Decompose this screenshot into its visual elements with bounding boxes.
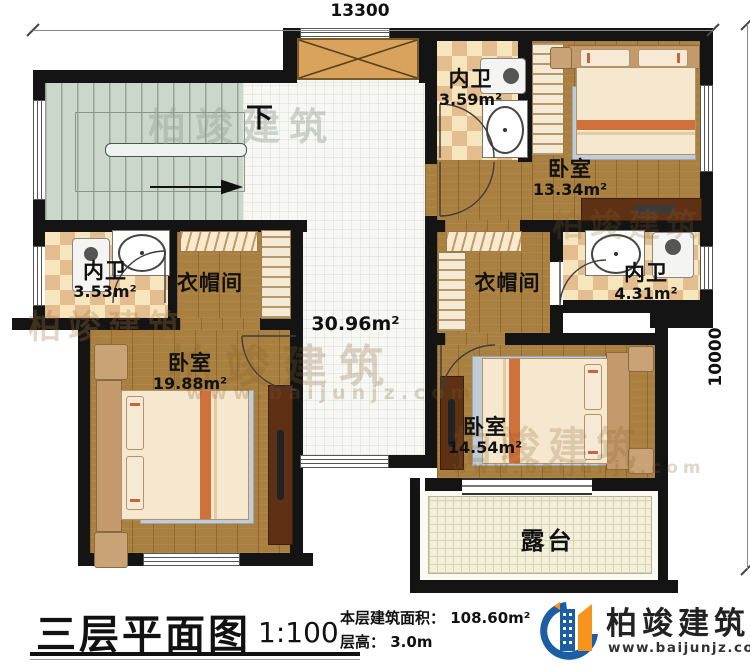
tv <box>277 430 284 500</box>
room-name: 卧室 <box>120 352 260 375</box>
room-name: 卧室 <box>415 416 555 439</box>
room-label-bedroom-se: 卧室 14.54m² <box>415 416 555 457</box>
bedroom-se-doorway <box>445 333 505 345</box>
room-area: 19.88m² <box>120 375 260 393</box>
room-name: 内卫 <box>590 262 702 285</box>
floor-plan: 13300 10000 柏竣建筑 柏竣建筑 柏竣建筑 柏竣建筑 www.baij… <box>0 0 750 669</box>
room-label-closet-west: 衣帽间 <box>155 272 265 295</box>
nightstand <box>94 532 128 568</box>
hanging-rack <box>180 231 258 252</box>
room-label-bath-east: 内卫 4.31m² <box>590 262 702 303</box>
room-label-bath-west: 内卫 3.53m² <box>50 260 160 301</box>
sink <box>486 106 524 154</box>
window <box>700 85 713 172</box>
room-label-closet-east: 衣帽间 <box>450 272 565 295</box>
wardrobe <box>261 230 291 319</box>
bed-fold <box>577 132 695 135</box>
pillow <box>126 456 144 510</box>
terrace-parapet <box>410 478 420 593</box>
window <box>33 246 45 306</box>
wall <box>283 28 297 83</box>
bed-headboard <box>96 380 122 532</box>
dim-tick <box>741 18 750 30</box>
pillow <box>584 414 602 460</box>
room-area: 4.31m² <box>590 285 702 303</box>
room-area: 3.53m² <box>50 283 160 301</box>
room-name: 衣帽间 <box>450 272 565 295</box>
doorway-gap <box>425 164 437 216</box>
nightstand <box>550 47 572 69</box>
title-underline <box>30 652 360 656</box>
floor-area-label: 本层建筑面积： <box>340 609 445 627</box>
room-name: 卧室 <box>500 158 640 181</box>
wall <box>550 305 563 333</box>
logo-block: 柏竣建筑 www.baijunjz.com <box>536 596 744 666</box>
bed-stripe <box>577 120 695 130</box>
brand-logo-icon <box>536 596 602 664</box>
dimension-line-right <box>747 24 748 569</box>
room-name: 内卫 <box>50 260 160 283</box>
stair-handrail <box>105 143 247 157</box>
pillow <box>126 396 144 450</box>
bed <box>576 67 696 155</box>
room-name: 内卫 <box>418 68 523 91</box>
bed-fold <box>214 391 217 519</box>
brand-website: www.baijunjz.com <box>608 640 750 656</box>
floor-height-label: 层高： <box>340 633 385 651</box>
wall <box>505 333 655 345</box>
floor-area-line: 本层建筑面积： 108.60m² <box>340 607 530 628</box>
dim-tick <box>741 563 750 575</box>
sliding-door-track <box>462 485 592 487</box>
laptop <box>634 205 674 213</box>
wall <box>550 228 563 262</box>
room-area: 3.59m² <box>418 91 523 109</box>
room-label-bedroom-sw: 卧室 19.88m² <box>120 352 260 393</box>
room-label-terrace: 露台 <box>490 528 605 554</box>
pillow <box>638 49 688 67</box>
plan-scale: 1:100 <box>258 616 339 649</box>
title-underline-thin <box>30 659 360 660</box>
x-cabinet <box>297 38 419 80</box>
room-name: 露台 <box>490 528 605 554</box>
terrace-sliding-door <box>462 478 592 495</box>
closet-bedroom-opening <box>180 318 260 330</box>
bed-headboard <box>606 352 630 470</box>
room-label-bedroom-ne: 卧室 13.34m² <box>500 158 640 199</box>
tv-cabinet <box>268 385 293 545</box>
room-label-bath-top: 内卫 3.59m² <box>418 68 523 109</box>
terrace-parapet <box>410 580 678 593</box>
room-area: 30.96m² <box>298 314 413 335</box>
room-area: 14.54m² <box>415 439 555 457</box>
room-label-hall: 30.96m² <box>298 314 413 335</box>
nightstand <box>628 346 654 372</box>
desk <box>581 198 702 221</box>
dimension-top-value: 13300 <box>315 1 405 21</box>
room-name: 衣帽间 <box>155 272 265 295</box>
wall <box>12 318 180 330</box>
stairs-down-label: 下 <box>246 96 273 135</box>
nightstand <box>628 448 654 474</box>
window <box>143 553 240 566</box>
wall <box>655 328 668 478</box>
hanging-rack <box>446 231 522 252</box>
pillow <box>584 364 602 410</box>
logo-building-orange <box>578 604 592 651</box>
wall <box>33 70 295 83</box>
window <box>300 455 389 468</box>
dimension-line-top <box>33 30 713 31</box>
floor-area-value: 108.60m² <box>450 609 530 627</box>
pillow <box>580 49 630 67</box>
dimension-right-value: 10000 <box>706 316 726 398</box>
window <box>33 100 45 200</box>
wall <box>78 330 90 566</box>
brand-name: 柏竣建筑 <box>606 598 750 643</box>
terrace-parapet <box>658 478 668 593</box>
bed-stripe <box>200 391 211 519</box>
floor-height-line: 层高： 3.0m <box>340 631 432 652</box>
room-area: 13.34m² <box>500 181 640 199</box>
floor-height-value: 3.0m <box>390 633 432 651</box>
logo-building-blue <box>560 609 575 651</box>
wall <box>437 333 445 345</box>
